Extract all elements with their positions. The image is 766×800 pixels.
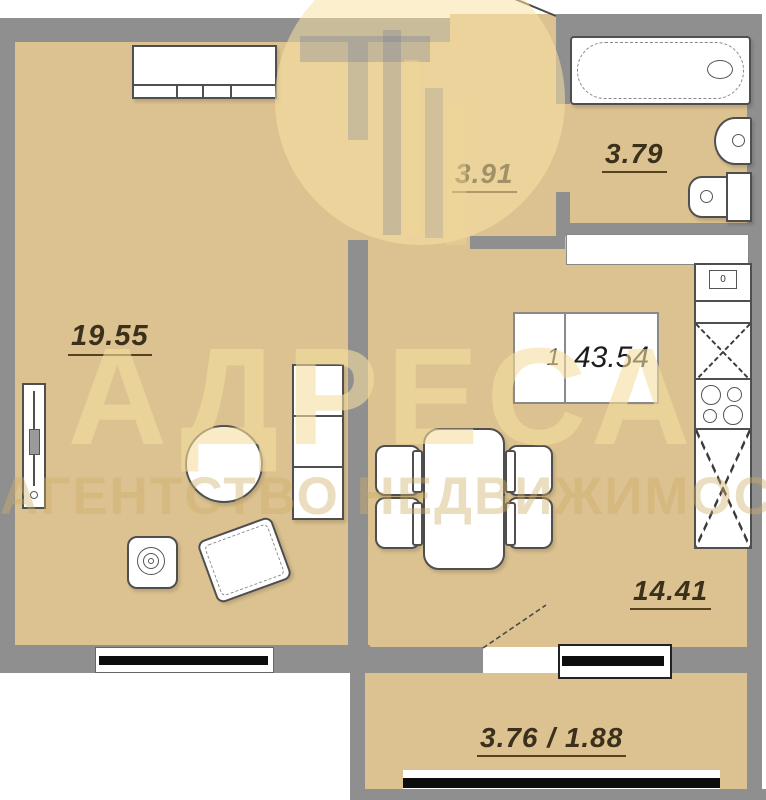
floor-entrance bbox=[450, 14, 556, 24]
apartment-number: 1 bbox=[515, 314, 566, 402]
burner bbox=[723, 405, 743, 425]
round-table bbox=[185, 425, 263, 503]
burner bbox=[703, 409, 717, 423]
window-living bbox=[95, 647, 274, 673]
sofa bbox=[292, 364, 344, 520]
total-area-value: 43.54 bbox=[566, 314, 657, 402]
room-label-balcony: 3.76 / 1.88 bbox=[477, 722, 626, 757]
wall-hall-kitchen bbox=[470, 236, 565, 249]
chair bbox=[507, 497, 553, 549]
window-balcony bbox=[403, 770, 720, 789]
chair-backrest bbox=[412, 450, 423, 493]
room-label-living: 19.55 bbox=[68, 320, 152, 356]
sofa-seat-divider bbox=[294, 466, 342, 468]
room-label-kitchen: 14.41 bbox=[630, 575, 711, 610]
wardrobe-door-divider bbox=[230, 86, 232, 97]
wall-top-right bbox=[556, 14, 762, 38]
chair-backrest bbox=[412, 502, 423, 546]
toilet-drain bbox=[700, 190, 713, 203]
plant-dot bbox=[148, 558, 154, 564]
window-balcony-glass bbox=[403, 778, 720, 788]
washbasin-drain bbox=[732, 134, 745, 147]
wardrobe-door-divider bbox=[176, 86, 178, 97]
radiator-handle bbox=[29, 429, 40, 455]
stove bbox=[694, 378, 752, 432]
area-box: 1 43.54 bbox=[513, 312, 659, 404]
burner bbox=[701, 385, 721, 405]
wall-kitchen-balcony-right bbox=[666, 647, 747, 673]
room-label-bath: 3.79 bbox=[602, 138, 667, 173]
x-mark bbox=[696, 324, 750, 380]
chair bbox=[507, 445, 553, 496]
chair-backrest bbox=[505, 502, 516, 546]
radiator-knob bbox=[30, 491, 38, 499]
bathtub bbox=[570, 36, 751, 105]
chair-backrest bbox=[505, 450, 516, 493]
window-kitchen-glass bbox=[562, 656, 664, 666]
wardrobe-door-divider bbox=[202, 86, 204, 97]
opening-bath-door bbox=[566, 234, 749, 265]
wall-bath-left-upper bbox=[556, 14, 570, 104]
wall-bath-bottom bbox=[556, 223, 747, 234]
washbasin bbox=[714, 117, 752, 165]
toilet-tank bbox=[726, 172, 752, 222]
wall-top-left bbox=[0, 18, 450, 42]
wardrobe bbox=[132, 45, 277, 99]
chair bbox=[375, 497, 421, 549]
kitchen-cabinet-x bbox=[694, 322, 752, 382]
wall-balcony-bottom bbox=[350, 789, 766, 800]
bathtub-drain bbox=[707, 60, 733, 79]
chair bbox=[375, 445, 421, 496]
kitchen-cabinet-x bbox=[694, 428, 752, 549]
wall-kitchen-balcony-left bbox=[365, 647, 483, 673]
wall-left bbox=[0, 18, 15, 673]
x-mark bbox=[696, 430, 750, 547]
room-label-hall: 3.91 bbox=[452, 158, 517, 193]
window-living-glass bbox=[99, 656, 268, 665]
dining-table bbox=[423, 428, 505, 570]
burner bbox=[727, 387, 742, 402]
window-kitchen bbox=[558, 644, 672, 679]
floor-plan: 0 19.55 3.91 3.79 14.41 3.76 / 1.88 1 bbox=[0, 0, 766, 800]
wall-living-kitchen bbox=[348, 240, 368, 673]
wall-living-hall-upper bbox=[348, 18, 368, 140]
sofa-seat-divider bbox=[294, 415, 342, 417]
radiator-unit bbox=[22, 383, 46, 509]
wardrobe-doors bbox=[134, 84, 275, 97]
kitchen-sink: 0 bbox=[709, 270, 737, 289]
wall-balcony-left bbox=[350, 673, 365, 793]
kitchen-sink-unit: 0 bbox=[694, 263, 752, 304]
side-table bbox=[127, 536, 178, 589]
